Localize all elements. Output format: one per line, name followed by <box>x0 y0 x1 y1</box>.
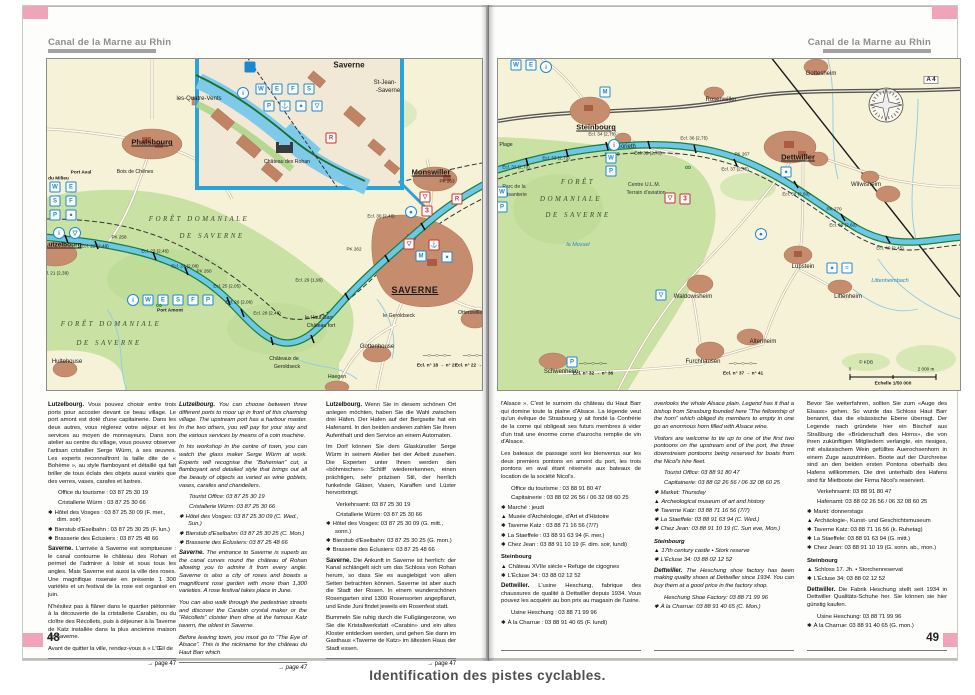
sub-heading: Steinbourg <box>654 539 794 547</box>
paragraph: Lutzelbourg. You can choose between thre… <box>179 401 307 440</box>
map-label: Château fort <box>307 323 336 329</box>
map-label: Ecl. 30 (2,48) <box>367 214 394 219</box>
picnic-icon: P <box>606 166 617 177</box>
map-label: Ecl. 37 (2,75) <box>721 167 748 172</box>
bullet-icon: ✱ <box>654 517 659 523</box>
page-number: 49 <box>926 632 939 644</box>
sub-heading: Steinbourg <box>501 554 641 562</box>
map-label: Ecl. n° 18 → n° 21 <box>417 364 457 369</box>
map-label: Terrain d'aviation <box>626 190 665 196</box>
listing-item: ✱Markt: donnerstags <box>807 509 947 517</box>
listing-item: ✱Taverne Katz: 03 88 71 16 56 (7/7) <box>654 508 794 516</box>
map-label: Phalsbourg <box>131 138 172 147</box>
map-label: Otterswiller <box>458 310 483 316</box>
contact-line: Verkehrsamt: 03 88 91 80 47 <box>807 489 947 497</box>
map-label: les-Quatre-Vents <box>176 96 221 102</box>
fuel-icon: F <box>288 84 299 95</box>
bullet-icon: ✱ <box>48 536 53 542</box>
info-icon: i <box>608 139 620 151</box>
map-label: Ecl. 25 (2,05) <box>213 284 240 289</box>
bullet-icon: ✱ <box>654 604 659 610</box>
column-german: Lutzelbourg. Wenn Sie in diesem schönen … <box>326 401 456 653</box>
scale-bar <box>850 374 936 380</box>
listing-item: ✱La Staeffele : 03 88 91 63 94 (F. mer.) <box>501 533 641 541</box>
map-label: PK 260 <box>196 269 211 274</box>
map-label: ─○─○─○─ <box>463 353 483 359</box>
column-rule <box>326 658 456 659</box>
map-label: Furchhausen <box>685 359 720 365</box>
market-icon: M <box>416 251 427 262</box>
parking-icon: P <box>203 295 214 306</box>
map-label: le Haut-Barr <box>305 315 333 321</box>
listing-item: ✱Brasserie des Éclusiers : 03 87 25 48 6… <box>48 536 176 544</box>
water-icon: W <box>497 187 508 198</box>
column-rule <box>807 650 947 651</box>
slipway-icon: ▽ <box>656 290 667 301</box>
map-label: DE SAVERNE <box>545 211 610 219</box>
cyclist-icon: ∞ <box>156 300 162 310</box>
listing-item: ✱L'Écluse 34: 03 88 02 12 52 <box>807 576 947 584</box>
listing-item: ✱Chez Jean: 03 88 91 10 19 (G. sonn. ab.… <box>807 545 947 553</box>
contact-line: Capitainerie : 03 88 02 26 56 / 06 32 08… <box>501 495 641 503</box>
listing-item: ▲Schloss 17. Jh. • Storchenreservat <box>807 567 947 575</box>
map-label: Ecl. 36 (2,75) <box>680 136 707 141</box>
contact-line: Usine Heschung: 03 88 71 99 96 <box>807 614 947 622</box>
fuel-icon: F <box>188 295 199 306</box>
bottom-caption: Identification des pistes cyclables. <box>0 668 975 683</box>
map-label: Monswiller <box>412 168 451 177</box>
crane-icon: ⚓ <box>429 240 440 251</box>
fuel-icon: F <box>66 196 77 207</box>
map-label: FORÊT DOMANIALE <box>149 215 250 223</box>
bullet-icon: ✱ <box>807 509 812 515</box>
shop-icon: ● <box>442 252 453 263</box>
map-label: Waldowisheim <box>674 294 712 300</box>
paragraph: Bummeln Sie ruhig durch die Fußgängerzon… <box>326 615 456 653</box>
contact-line: Cristallerie Würm: 03 87 25 30 66 <box>179 504 307 512</box>
water-icon: W <box>606 153 617 164</box>
map-label: Littenheim <box>834 294 862 300</box>
listing-item: ✱Taverne Katz : 03 88 71 16 56 (7/7) <box>501 523 641 531</box>
column-rule <box>48 658 176 659</box>
listing-item: ▲Archäologie-, Kunst- und Geschichtsmuse… <box>807 518 947 526</box>
lock-icon: ● <box>405 206 417 218</box>
slipway-icon: ▽ <box>665 193 676 204</box>
picnic-icon: P <box>567 357 578 368</box>
map-right-artwork <box>498 59 960 390</box>
map-label: DE SAVERNE <box>179 232 244 240</box>
contact-line: Capitainerie: 03 88 02 26 56 / 06 32 08 … <box>654 480 794 488</box>
contact-line: Hafenamt: 03 88 02 26 56 / 06 32 08 60 2… <box>807 499 947 507</box>
map-label: le Geroldseck <box>383 313 415 319</box>
listing-item: ✱L'Écluse 34 : 03 88 02 12 52 <box>501 573 641 581</box>
book-gutter <box>481 5 495 661</box>
map-label: SAVERNE <box>391 285 438 295</box>
map-label: Hultehouse <box>52 359 82 365</box>
map-label: PK 270 <box>826 207 841 212</box>
map-label: Bois de Chênes <box>117 169 154 175</box>
bullet-icon: ✱ <box>179 540 184 546</box>
map-label: Ecl. 26 (2,06) <box>225 300 252 305</box>
map-label: Saverne <box>333 61 364 70</box>
bullet-icon: ▲ <box>501 514 506 520</box>
bullet-icon: ✱ <box>501 573 506 579</box>
map-label: Gottesheim <box>806 71 837 77</box>
bullet-icon: ✱ <box>326 547 331 553</box>
header-bar <box>48 49 156 53</box>
picnic-icon: P <box>497 202 508 213</box>
pink-corner-block <box>23 633 43 647</box>
column-english: Lutzelbourg. You can choose between thre… <box>179 401 307 653</box>
map-label: Ecl. n° 32 → n° 36 <box>573 372 613 377</box>
bullet-icon: ✱ <box>807 545 812 551</box>
page-header: Canal de la Marne au Rhin <box>48 37 171 48</box>
map-label: Lupstein <box>792 264 815 270</box>
paragraph: Saverne. L'arrivée à Saverne est somptue… <box>48 545 176 600</box>
map-label: FORÊT <box>561 178 595 186</box>
listing-item: ✱La Staeffele: 03 88 91 63 94 (G. mitt.) <box>807 536 947 544</box>
contact-line: Office du tourisme : 03 88 91 80 47 <box>501 486 641 494</box>
electricity-icon: E <box>526 60 537 71</box>
route-3-badge: 3 <box>680 194 691 205</box>
shower-icon: S <box>173 295 184 306</box>
map-label: PK 262 <box>346 247 361 252</box>
map-label: Ecl. 40 (2,45) <box>876 246 903 251</box>
bullet-icon: ✱ <box>501 533 506 539</box>
map-label: Ecl. 34 (2,70) <box>588 132 615 137</box>
bullet-icon: ✱ <box>807 536 812 542</box>
contact-line: Cristallerie Würm: 03 87 25 30 66 <box>326 512 456 520</box>
leisure-icon: ● <box>781 167 792 178</box>
bullet-icon: ✱ <box>654 526 659 532</box>
listing-item: ✱Taverne Katz: 03 88 71 16 56 (k. Ruheta… <box>807 527 947 535</box>
pink-corner-block <box>23 6 48 19</box>
map-label: 0 <box>849 367 852 372</box>
paragraph: Dettwiller. L'usine Heschung, fabrique d… <box>501 582 641 606</box>
header-bar <box>823 49 931 53</box>
contact-line: Tourist Office: 03 88 91 80 47 <box>654 470 794 478</box>
paragraph: N'hésitez pas à flâner dans le quartier … <box>48 604 176 642</box>
info-icon: i <box>540 61 552 73</box>
paragraph: Bevor Sie weiterfahren, sollten Sie zum … <box>807 401 947 485</box>
map-label: ─○─○─○─ <box>423 353 451 359</box>
map-label: DOMANIALE <box>540 195 602 203</box>
paragraph: Saverne. Die Ankunft in Saverne ist herr… <box>326 557 456 612</box>
paragraph: Saverne. The entrance to Saverne is supe… <box>179 549 307 596</box>
paragraph: Dettwiller. Die Fabrik Heschung stellt s… <box>807 586 947 610</box>
page-header: Canal de la Marne au Rhin <box>808 37 931 48</box>
saverne-inset-frame <box>196 59 402 188</box>
compass-rose <box>869 88 903 122</box>
map-label: PK 267 <box>734 152 749 157</box>
listing-item: ✱Bierstub d'Eselbahn : 03 87 25 30 25 (F… <box>48 527 176 535</box>
map-label: Ecl. 28 (2,48) <box>253 311 280 316</box>
map-label: Ecl. 35 (2,78) <box>634 151 661 156</box>
bullet-icon: ✱ <box>501 542 506 548</box>
map-label: 2 000 m <box>918 367 935 372</box>
paragraph: Les bateaux de passage sont les bienvenu… <box>501 451 641 482</box>
paragraph: Before leaving town, you must go to “The… <box>179 635 307 658</box>
map-label: Haegen <box>328 374 346 380</box>
parking-icon: P <box>50 210 61 221</box>
map-label: Ecl. 33 (2,75) <box>542 156 569 161</box>
listing-item: ▲Château XVIIe siècle • Refuge de cigogn… <box>501 564 641 572</box>
listing-item: ✱Hôtel des Vosges : 03 87 25 30 09 (F. m… <box>48 510 176 525</box>
bullet-icon: ✱ <box>179 531 184 537</box>
map-label: Wilwisheim <box>851 182 881 188</box>
map-label: Centre U.L.M. <box>628 182 660 188</box>
listing-item: ✱Marché : jeudi <box>501 505 641 513</box>
lock-icon: ● <box>755 228 767 240</box>
listing-item: ✱L'Écluse 34: 03 88 02 12 52 <box>654 557 794 565</box>
contact-line: Verkehrsamt: 03 87 25 30 19 <box>326 502 456 510</box>
bullet-icon: ▲ <box>654 548 659 554</box>
water-icon: W <box>143 295 154 306</box>
electricity-icon: E <box>66 182 77 193</box>
map-label: © KDB <box>859 360 873 365</box>
column-rule <box>179 662 307 663</box>
paragraph: Im Dorf können Sie dem Glaskünstler Serg… <box>326 444 456 498</box>
map-label: Dettwiller <box>781 153 815 162</box>
slipway-icon: ▽ <box>69 227 81 239</box>
column-french: Lutzelbourg. Vous pouvez choisir entre t… <box>48 401 176 653</box>
listing-item: ✱Market: Thursday <box>654 490 794 498</box>
bullet-icon: ✱ <box>48 527 53 533</box>
leisure-icon: ● <box>827 263 838 274</box>
map-label: PK 258 <box>111 235 126 240</box>
paragraph: You can also walk through the pedestrian… <box>179 600 307 631</box>
bullet-icon: ▲ <box>807 518 812 524</box>
bullet-icon: ✱ <box>807 576 812 582</box>
map-label: A 4 <box>923 76 938 84</box>
bullet-icon: ▲ <box>807 567 812 573</box>
bullet-icon: ✱ <box>654 490 659 496</box>
bullet-icon: ✱ <box>807 623 812 629</box>
slipway-icon: ▽ <box>312 101 323 112</box>
column-rule <box>501 650 641 651</box>
parking-icon: P <box>264 101 275 112</box>
contact-line: Usine Heschung : 03 88 71 99 96 <box>501 610 641 618</box>
listing-item: ✱Chez Jean : 03 88 91 10 19 (F. dim. soi… <box>501 542 641 550</box>
listing-item: ✱Brasserie des Éclusiers: 03 87 25 48 66 <box>179 540 307 548</box>
listing-item: ✱Hôtel des Vosges: 03 87 25 30 09 (G. mi… <box>326 521 456 536</box>
listing-item: ✱À la Charrue : 03 88 91 40 65 (F. lundi… <box>501 620 641 628</box>
supermarket-icon: M <box>600 87 611 98</box>
column-english: overlooks the whole Alsace plain. Legend… <box>654 401 794 653</box>
listing-item: ▲Archeological museum of art and history <box>654 499 794 507</box>
info-icon: i <box>127 294 139 306</box>
map-label: Ecl. 29 (1,96) <box>295 278 322 283</box>
map-label: PK 263 <box>439 179 454 184</box>
water-icon: W <box>256 84 267 95</box>
page-left: Canal de la Marne au Rhin <box>22 5 487 661</box>
map-label: ─○─○─○─ <box>729 361 757 367</box>
listing-item: ✱Brasserie des Éclusiers: 03 87 25 48 66 <box>326 547 456 555</box>
anchorage-icon: ⚓ <box>280 101 291 112</box>
bullet-icon: ✱ <box>807 527 812 533</box>
map-label: St-Jean- <box>374 80 397 86</box>
page-right: Canal de la Marne au Rhin <box>488 5 958 661</box>
paragraph: Lutzelbourg. Vous pouvez choisir entre t… <box>48 401 176 486</box>
map-label: Ecl. 22 (2,48) <box>81 244 108 249</box>
paragraph: Lutzelbourg. Wenn Sie in diesem schönen … <box>326 401 456 440</box>
map-label: Gottenhouse <box>360 344 394 350</box>
pool-icon: ≈ <box>842 263 853 274</box>
bullet-icon: ✱ <box>326 521 331 527</box>
shower-icon: S <box>304 84 315 95</box>
listing-item: ✱À la Charrue: 03 88 91 40 65 (G. mon.) <box>807 623 947 631</box>
bullet-icon: ✱ <box>326 538 331 544</box>
column-french: l'Alsace ». C'est le surnom du château d… <box>501 401 641 653</box>
listing-item: ✱La Staeffele: 03 88 91 63 94 (C. Wed.) <box>654 517 794 525</box>
water-icon: W <box>50 182 61 193</box>
sub-heading: Steinbourg <box>807 558 947 566</box>
route-3-badge: 3 <box>422 206 433 217</box>
bullet-icon: ✱ <box>654 508 659 514</box>
map-label: Ecl. n° 22 → n° 31 <box>455 364 483 369</box>
contact-line: Office du tourisme : 03 87 25 30 19 <box>48 490 176 498</box>
paragraph: Avant de quitter la ville, rendez-vous à… <box>48 646 176 654</box>
map-label: Littenheimbach <box>871 278 908 284</box>
paragraph: Dettwiller. The Heschung shoe factory ha… <box>654 567 794 591</box>
map-label: Lutzelbourg <box>46 242 82 249</box>
listing-item: ✱Hôtel des Vosges: 03 87 25 30 09 (C. We… <box>179 514 307 529</box>
listing-item: ✱Bierstub d'Eselbahn: 03 87 25 30 25 (C.… <box>179 531 307 539</box>
paragraph: overlooks the whole Alsace plain. Legend… <box>654 401 794 432</box>
contact-line: Heschung Shoe Factory: 03 88 71 99 96 <box>654 595 794 603</box>
map-label: Ecl. 23 (2,46) <box>141 249 168 254</box>
bullet-icon: ✱ <box>501 505 506 511</box>
map-label: Ecl. 39 (2,60) <box>829 223 856 228</box>
slipway-icon: ▽ <box>404 239 415 250</box>
paragraph: l'Alsace ». C'est le surnom du château d… <box>501 401 641 447</box>
map-label: Châteaux de <box>269 356 298 362</box>
map-label: Echelle 1/50 000 <box>875 382 912 387</box>
map-label: ─○─○─○─ <box>579 361 607 367</box>
map-label: la Mossel <box>566 242 589 248</box>
paragraph: Visitors are welcome to tie up to one of… <box>654 436 794 467</box>
water-icon: W <box>511 60 522 71</box>
map-label: -Saverne <box>376 88 400 94</box>
map-label: Ecl. n° 37 → n° 41 <box>723 372 763 377</box>
map-label: Geroldseck <box>274 364 300 370</box>
slipway-icon: ▽ <box>420 192 431 203</box>
pink-corner-block <box>932 6 957 19</box>
map-label: Port Aval <box>71 171 92 176</box>
services-icon: ● <box>66 210 77 221</box>
r-service-icon: R <box>326 133 337 144</box>
contact-line: Cristallerie Würm : 03 87 25 30 66 <box>48 500 176 508</box>
map-label: Ecl. 21 (2,39) <box>46 271 69 276</box>
map-left-saverne: Phalsbourgles-Quatre-VentsBois de Chênes… <box>46 58 483 391</box>
info-icon: i <box>53 227 65 239</box>
shower-icon: S <box>50 196 61 207</box>
port-icon <box>245 62 256 73</box>
paragraph: In his workshop in the centre of town, y… <box>179 444 307 490</box>
map-label: DE SAVERNE <box>76 339 141 347</box>
map-label: FORÊT DOMANIALE <box>61 320 162 328</box>
bullet-icon: ▲ <box>501 564 506 570</box>
listing-item: ✱Bierstub d'Eselbahn: 03 87 25 30 25 (G.… <box>326 538 456 546</box>
map-label: Ecl. 24 (2,08) <box>171 264 198 269</box>
bullet-icon: ✱ <box>48 510 53 516</box>
bullet-icon: ✱ <box>179 514 184 520</box>
contact-line: Tourist Office: 03 87 25 30 19 <box>179 494 307 502</box>
column-german: Bevor Sie weiterfahren, sollten Sie zum … <box>807 401 947 653</box>
r-service-icon: R <box>452 194 463 205</box>
map-label: Château des Rohan <box>264 159 310 165</box>
map-label: Plage <box>499 142 512 148</box>
map-label: Altenheim <box>750 339 777 345</box>
map-right-steinbourg-dettwiller: SteinbourgGottesheimRosenwillerDettwille… <box>497 58 961 391</box>
bullet-icon: ▲ <box>654 499 659 505</box>
listing-item: ✱À la Charrue: 03 88 91 40 65 (C. Mon.) <box>654 604 794 612</box>
listing-item: ▲17th century castle • Stork reserve <box>654 548 794 556</box>
cyclist-icon: ∞ <box>685 162 691 172</box>
map-label: Ecl. 38 (2,60) <box>782 192 809 197</box>
bullet-icon: ✱ <box>501 523 506 529</box>
info-icon: i <box>237 87 249 99</box>
bullet-icon: ✱ <box>654 557 659 563</box>
listing-item: ✱Chez Jean: 03 88 91 10 19 (C. Sun eve, … <box>654 526 794 534</box>
page-number: 48 <box>47 632 60 644</box>
map-label: Steinbourg <box>576 123 616 132</box>
map-label: Ecl. 32 (2,70) <box>502 165 529 170</box>
electricity-icon: E <box>272 84 283 95</box>
services-icon: ● <box>296 101 307 112</box>
listing-item: ▲Musée d'Archéologie, d'Art et d'Histoir… <box>501 514 641 522</box>
map-label: Rosenwiller <box>705 97 736 103</box>
bullet-icon: ✱ <box>501 620 506 626</box>
column-rule <box>654 650 794 651</box>
